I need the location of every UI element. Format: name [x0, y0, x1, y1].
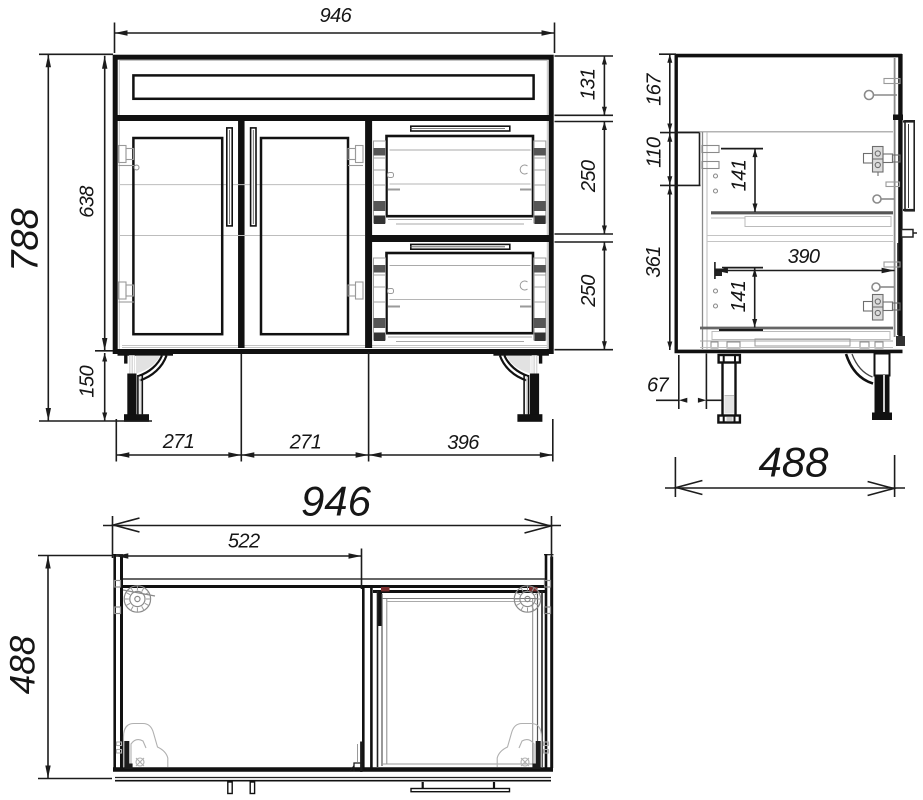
svg-text:271: 271 [289, 431, 322, 453]
svg-text:131: 131 [578, 69, 600, 101]
svg-text:250: 250 [578, 160, 600, 193]
svg-text:488: 488 [4, 635, 43, 694]
svg-text:150: 150 [77, 366, 99, 398]
svg-text:141: 141 [728, 281, 750, 313]
svg-text:522: 522 [228, 530, 260, 552]
svg-text:167: 167 [644, 73, 666, 106]
svg-text:250: 250 [578, 275, 600, 308]
svg-text:946: 946 [301, 478, 372, 525]
svg-text:396: 396 [447, 432, 480, 454]
svg-text:141: 141 [729, 160, 751, 192]
svg-text:488: 488 [758, 439, 829, 486]
svg-text:361: 361 [643, 246, 665, 278]
svg-text:67: 67 [647, 374, 670, 396]
svg-text:946: 946 [320, 5, 353, 27]
svg-text:788: 788 [5, 208, 47, 271]
svg-text:638: 638 [77, 186, 99, 218]
svg-text:390: 390 [788, 246, 820, 268]
svg-text:271: 271 [162, 431, 195, 453]
svg-text:110: 110 [644, 137, 666, 168]
